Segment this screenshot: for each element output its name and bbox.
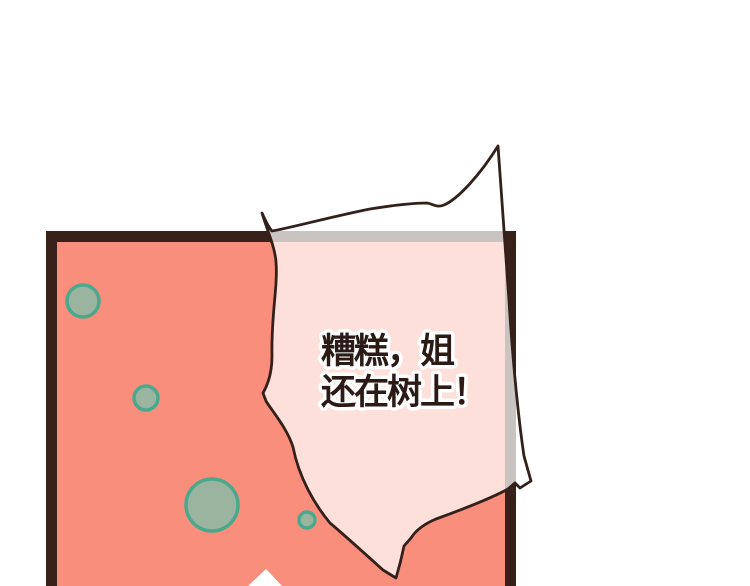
- bubble-circle-small-mid: [134, 386, 158, 410]
- speech-text-line-2: 还在树上！: [321, 373, 486, 413]
- comic-page: 糟糕，姐 还在树上！: [0, 0, 750, 586]
- speech-text-line-1: 糟糕，姐: [321, 332, 455, 372]
- bubble-circle-large: [186, 479, 238, 531]
- comic-panel-scene: 糟糕，姐 还在树上！: [0, 0, 750, 586]
- bubble-circle-small-top: [67, 285, 99, 317]
- bubble-circle-tiny: [299, 512, 315, 528]
